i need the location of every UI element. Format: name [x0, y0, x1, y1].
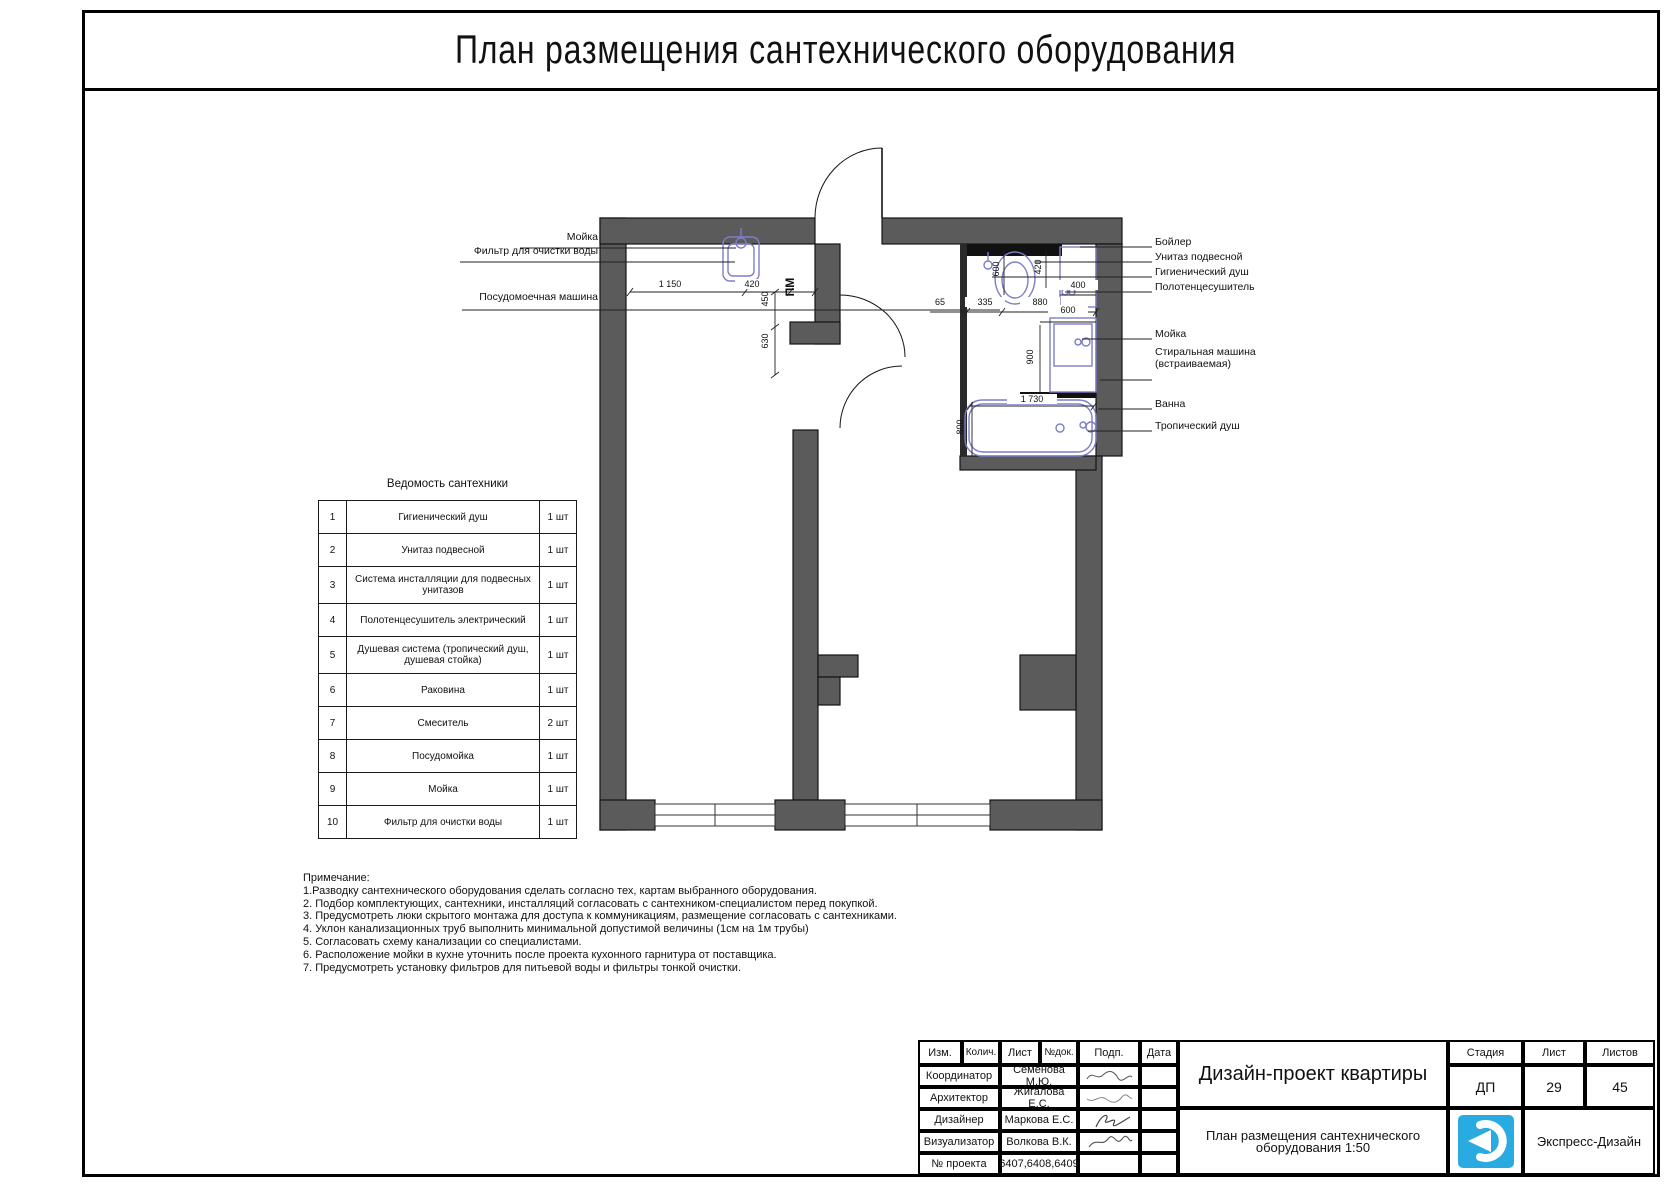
tb-sheet-title-line2: оборудования 1:50 — [1256, 1142, 1370, 1154]
dim-600-washer: 600 — [1048, 305, 1088, 315]
callout-washing-machine-2: (встраиваемая) — [1155, 358, 1345, 370]
row-num: 4 — [319, 604, 347, 636]
row-qty: 1 шт — [540, 674, 576, 706]
dim-400: 400 — [1058, 280, 1098, 290]
entrance-door-arc — [815, 148, 882, 218]
note-line: 3. Предусмотреть люки скрытого монтажа д… — [303, 910, 963, 923]
dim-1150: 1 150 — [650, 279, 690, 289]
note-line: 6. Расположение мойки в кухне уточнить п… — [303, 949, 963, 962]
dishwasher-mark: ПМ — [783, 272, 797, 302]
callout-tropical-shower: Тропический душ — [1155, 420, 1345, 432]
callout-hygienic-shower: Гигиенический душ — [1155, 266, 1345, 278]
callout-wall-toilet: Унитаз подвесной — [1155, 251, 1345, 263]
fixtures-table: 1Гигиенический душ1 шт 2Унитаз подвесной… — [318, 500, 577, 839]
row-num: 6 — [319, 674, 347, 706]
tb-col-izm: Изм. — [918, 1040, 962, 1065]
dim-600-toilet: 600 — [991, 254, 1001, 284]
callout-water-filter: Фильтр для очистки воды — [438, 245, 598, 257]
tb-sheet-value: 29 — [1523, 1065, 1585, 1108]
dim-65: 65 — [928, 297, 952, 307]
table-row: 2Унитаз подвесной1 шт — [319, 534, 576, 567]
row-qty: 1 шт — [540, 501, 576, 533]
tb-sheets-label: Листов — [1585, 1040, 1655, 1065]
callout-washing-machine: Стиральная машина — [1155, 346, 1345, 358]
row-name: Душевая система (тропический душ, душева… — [347, 637, 540, 673]
note-line: 1.Разводку сантехнического оборудования … — [303, 885, 963, 898]
table-row: 7Смеситель2 шт — [319, 707, 576, 740]
row-name: Фильтр для очистки воды — [347, 806, 540, 838]
table-row: 9Мойка1 шт — [319, 773, 576, 806]
row-qty: 1 шт — [540, 773, 576, 805]
row-name: Раковина — [347, 674, 540, 706]
drawing-sheet: План размещения сантехнического оборудов… — [0, 0, 1680, 1187]
dim-900: 900 — [1025, 342, 1035, 372]
signature-mark — [1084, 1090, 1134, 1106]
signature-mark — [1084, 1111, 1134, 1129]
tb-col-data: Дата — [1140, 1040, 1178, 1065]
tb-col-list: Лист — [1000, 1040, 1040, 1065]
dim-800: 800 — [955, 412, 965, 442]
callout-bathtub: Ванна — [1155, 398, 1345, 410]
tb-sheet-label: Лист — [1523, 1040, 1585, 1065]
row-qty: 1 шт — [540, 806, 576, 838]
tb-name-visualizer: Волкова В.К. — [1000, 1131, 1078, 1153]
tb-col-ndok: №док. — [1040, 1040, 1078, 1065]
row-num: 7 — [319, 707, 347, 739]
row-qty: 1 шт — [540, 534, 576, 566]
dim-1730: 1 730 — [1007, 394, 1057, 404]
dim-450: 450 — [760, 284, 770, 314]
dim-630: 630 — [760, 326, 770, 356]
row-name: Система инсталляции для подвесных унитаз… — [347, 567, 540, 603]
signature-mark — [1084, 1133, 1134, 1151]
row-qty: 1 шт — [540, 740, 576, 772]
washing-machine-sink-fixture — [1050, 318, 1096, 392]
row-num: 8 — [319, 740, 347, 772]
row-name: Мойка — [347, 773, 540, 805]
row-num: 1 — [319, 501, 347, 533]
table-row: 6Раковина1 шт — [319, 674, 576, 707]
tb-date-cell — [1140, 1153, 1178, 1175]
row-num: 5 — [319, 637, 347, 673]
tb-name-architect: Жигалова Е.С. — [1000, 1087, 1078, 1109]
tb-role-designer: Дизайнер — [918, 1109, 1000, 1131]
interior-door-arc-1 — [840, 295, 905, 357]
callout-bath-sink: Мойка — [1155, 328, 1345, 340]
callout-towel-dryer: Полотенцесушитель — [1155, 281, 1345, 293]
tb-name-coordinator: Семенова М.Ю. — [1000, 1065, 1078, 1087]
row-name: Смеситель — [347, 707, 540, 739]
table-row: 5Душевая система (тропический душ, душев… — [319, 637, 576, 674]
callout-dishwasher: Посудомоечная машина — [438, 291, 598, 303]
sheet-main-title: План размещения сантехнического оборудов… — [455, 28, 1175, 73]
row-name: Полотенцесушитель электрический — [347, 604, 540, 636]
dim-420-toilet: 420 — [1033, 252, 1043, 282]
tb-role-coordinator: Координатор — [918, 1065, 1000, 1087]
callout-boiler: Бойлер — [1155, 236, 1345, 248]
row-name: Посудомойка — [347, 740, 540, 772]
row-name: Гигиенический душ — [347, 501, 540, 533]
callout-kitchen-sink: Мойка — [438, 231, 598, 243]
row-name: Унитаз подвесной — [347, 534, 540, 566]
notes-header: Примечание: — [303, 872, 963, 885]
signature-mark — [1084, 1068, 1134, 1084]
table-row: 4Полотенцесушитель электрический1 шт — [319, 604, 576, 637]
tb-date-cell — [1140, 1131, 1178, 1153]
tb-signature-designer — [1078, 1109, 1140, 1131]
note-line: 7. Предусмотреть установку фильтров для … — [303, 962, 963, 975]
row-num: 9 — [319, 773, 347, 805]
tb-empty-cell — [1078, 1153, 1140, 1175]
tb-company-name: Экспресс-Дизайн — [1523, 1108, 1655, 1175]
company-logo-icon — [1458, 1115, 1514, 1168]
tb-logo-cell — [1448, 1108, 1523, 1175]
tb-signature-architect — [1078, 1087, 1140, 1109]
title-separator-line — [85, 88, 1657, 91]
tb-signature-coordinator — [1078, 1065, 1140, 1087]
tb-sheet-title: План размещения сантехнического оборудов… — [1178, 1108, 1448, 1175]
row-num: 3 — [319, 567, 347, 603]
notes-block: Примечание: 1.Разводку сантехнического о… — [303, 872, 963, 974]
tb-stage-label: Стадия — [1448, 1040, 1523, 1065]
note-line: 4. Уклон канализационных труб выполнить … — [303, 923, 963, 936]
tb-date-cell — [1140, 1065, 1178, 1087]
tb-col-kolich: Колич. — [962, 1040, 1000, 1065]
tb-project-number: 6407,6408,6409 — [1000, 1153, 1078, 1175]
row-qty: 2 шт — [540, 707, 576, 739]
row-num: 2 — [319, 534, 347, 566]
tb-col-podp: Подп. — [1078, 1040, 1140, 1065]
note-line: 5. Согласовать схему канализации со спец… — [303, 936, 963, 949]
tb-date-cell — [1140, 1087, 1178, 1109]
table-row: 3Система инсталляции для подвесных унита… — [319, 567, 576, 604]
tb-sheets-value: 45 — [1585, 1065, 1655, 1108]
note-line: 2. Подбор комплектующих, сантехники, инс… — [303, 898, 963, 911]
interior-door-arc-2 — [840, 366, 902, 428]
row-qty: 1 шт — [540, 637, 576, 673]
tb-date-cell — [1140, 1109, 1178, 1131]
tb-role-project-number: № проекта — [918, 1153, 1000, 1175]
tb-stage-value: ДП — [1448, 1065, 1523, 1108]
table-row: 1Гигиенический душ1 шт — [319, 501, 576, 534]
fixtures-table-title: Ведомость сантехники — [318, 478, 577, 490]
row-qty: 1 шт — [540, 604, 576, 636]
table-row: 8Посудомойка1 шт — [319, 740, 576, 773]
tb-project-title: Дизайн-проект квартиры — [1178, 1040, 1448, 1108]
table-row: 10Фильтр для очистки воды1 шт — [319, 806, 576, 838]
tb-role-visualizer: Визуализатор — [918, 1131, 1000, 1153]
tb-role-architect: Архитектор — [918, 1087, 1000, 1109]
tb-signature-visualizer — [1078, 1131, 1140, 1153]
row-num: 10 — [319, 806, 347, 838]
tb-name-designer: Маркова Е.С. — [1000, 1109, 1078, 1131]
dim-335: 335 — [965, 297, 1005, 307]
row-qty: 1 шт — [540, 567, 576, 603]
bathtub-fixture — [965, 400, 1096, 456]
